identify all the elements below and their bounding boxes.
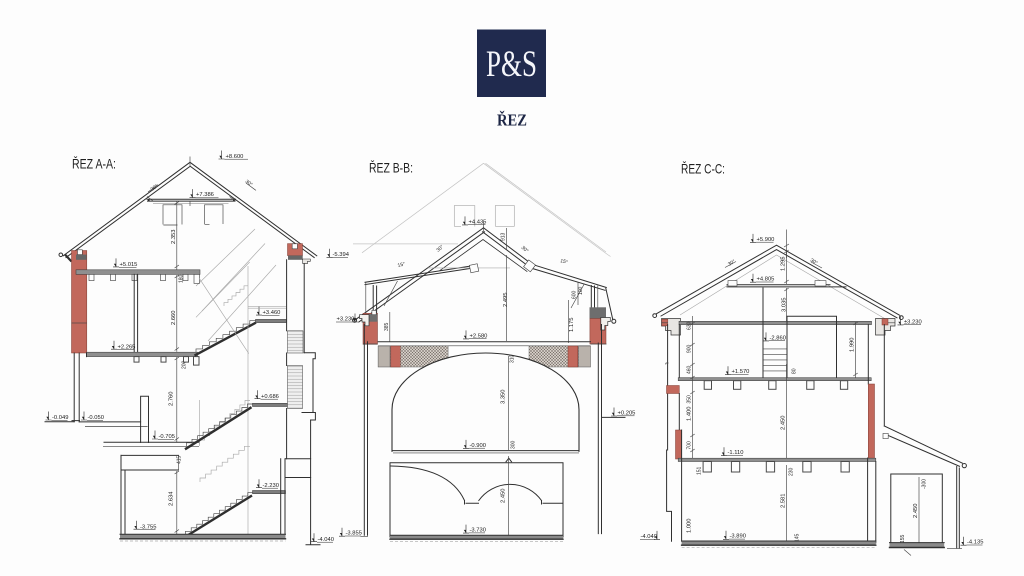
svg-text:-3.755: -3.755 bbox=[140, 524, 156, 530]
svg-text:P&S: P&S bbox=[486, 44, 537, 85]
svg-text:+5.900: +5.900 bbox=[757, 237, 775, 243]
svg-text:350: 350 bbox=[687, 395, 693, 404]
svg-text:+2.580: +2.580 bbox=[470, 333, 488, 339]
svg-text:2.634: 2.634 bbox=[169, 491, 175, 506]
svg-text:385: 385 bbox=[384, 322, 390, 331]
svg-text:+8.600: +8.600 bbox=[226, 154, 244, 160]
svg-text:-3.730: -3.730 bbox=[470, 528, 486, 534]
svg-text:+1.570: +1.570 bbox=[732, 369, 750, 375]
svg-text:300: 300 bbox=[511, 440, 517, 449]
svg-text:2.353: 2.353 bbox=[171, 229, 177, 244]
svg-text:1.400: 1.400 bbox=[687, 406, 693, 421]
svg-text:ŘEZ B-B:: ŘEZ B-B: bbox=[369, 160, 413, 176]
svg-text:80: 80 bbox=[792, 368, 798, 374]
svg-text:-4.040: -4.040 bbox=[641, 534, 657, 540]
svg-text:ŘEZ: ŘEZ bbox=[497, 111, 527, 130]
svg-text:1.295: 1.295 bbox=[781, 256, 787, 271]
svg-text:155: 155 bbox=[900, 534, 906, 543]
svg-text:1.000: 1.000 bbox=[687, 518, 693, 533]
svg-text:180: 180 bbox=[179, 274, 185, 283]
svg-text:3.035: 3.035 bbox=[782, 297, 788, 312]
svg-text:630: 630 bbox=[687, 321, 693, 330]
svg-text:-1.110: -1.110 bbox=[728, 450, 744, 456]
svg-text:+3.460: +3.460 bbox=[263, 310, 281, 316]
svg-text:-2.860: -2.860 bbox=[770, 335, 786, 341]
svg-text:230: 230 bbox=[789, 467, 795, 476]
svg-text:2.581: 2.581 bbox=[781, 493, 787, 508]
svg-text:+2.265: +2.265 bbox=[118, 344, 136, 350]
svg-text:-4.135: -4.135 bbox=[967, 540, 983, 546]
svg-text:-2.230: -2.230 bbox=[263, 483, 279, 489]
svg-text:-3.890: -3.890 bbox=[730, 534, 746, 540]
svg-text:2.660: 2.660 bbox=[171, 310, 177, 325]
svg-text:100: 100 bbox=[578, 286, 584, 295]
svg-text:700: 700 bbox=[687, 441, 693, 450]
svg-text:2.450: 2.450 bbox=[913, 503, 919, 518]
svg-text:+0.205: +0.205 bbox=[618, 410, 636, 416]
svg-text:2.760: 2.760 bbox=[169, 391, 175, 406]
svg-text:+4.805: +4.805 bbox=[757, 277, 775, 283]
svg-text:2.450: 2.450 bbox=[781, 415, 787, 430]
svg-text:-3.855: -3.855 bbox=[346, 531, 362, 537]
svg-text:ŘEZ A-A:: ŘEZ A-A: bbox=[72, 156, 116, 172]
svg-text:913: 913 bbox=[501, 232, 507, 241]
svg-text:2.450: 2.450 bbox=[501, 488, 507, 503]
svg-text:+0.686: +0.686 bbox=[261, 394, 279, 400]
svg-text:-4.040: -4.040 bbox=[318, 537, 334, 543]
svg-text:415: 415 bbox=[177, 455, 183, 464]
svg-text:2.495: 2.495 bbox=[503, 292, 509, 307]
svg-text:460: 460 bbox=[687, 365, 693, 374]
svg-text:ŘEZ C-C:: ŘEZ C-C: bbox=[681, 161, 725, 177]
svg-text:3.350: 3.350 bbox=[501, 389, 507, 404]
svg-text:600: 600 bbox=[572, 290, 578, 299]
svg-text:+7.386: +7.386 bbox=[196, 192, 214, 198]
svg-text:1.175: 1.175 bbox=[569, 317, 575, 332]
svg-text:151: 151 bbox=[697, 466, 703, 475]
svg-text:310: 310 bbox=[510, 354, 516, 363]
svg-text:900: 900 bbox=[687, 344, 693, 353]
svg-text:-300: -300 bbox=[922, 479, 928, 489]
svg-text:±3.230: ±3.230 bbox=[904, 319, 922, 325]
svg-text:-0.900: -0.900 bbox=[470, 443, 486, 449]
svg-text:1.990: 1.990 bbox=[850, 337, 856, 352]
svg-text:+5.015: +5.015 bbox=[120, 262, 138, 268]
